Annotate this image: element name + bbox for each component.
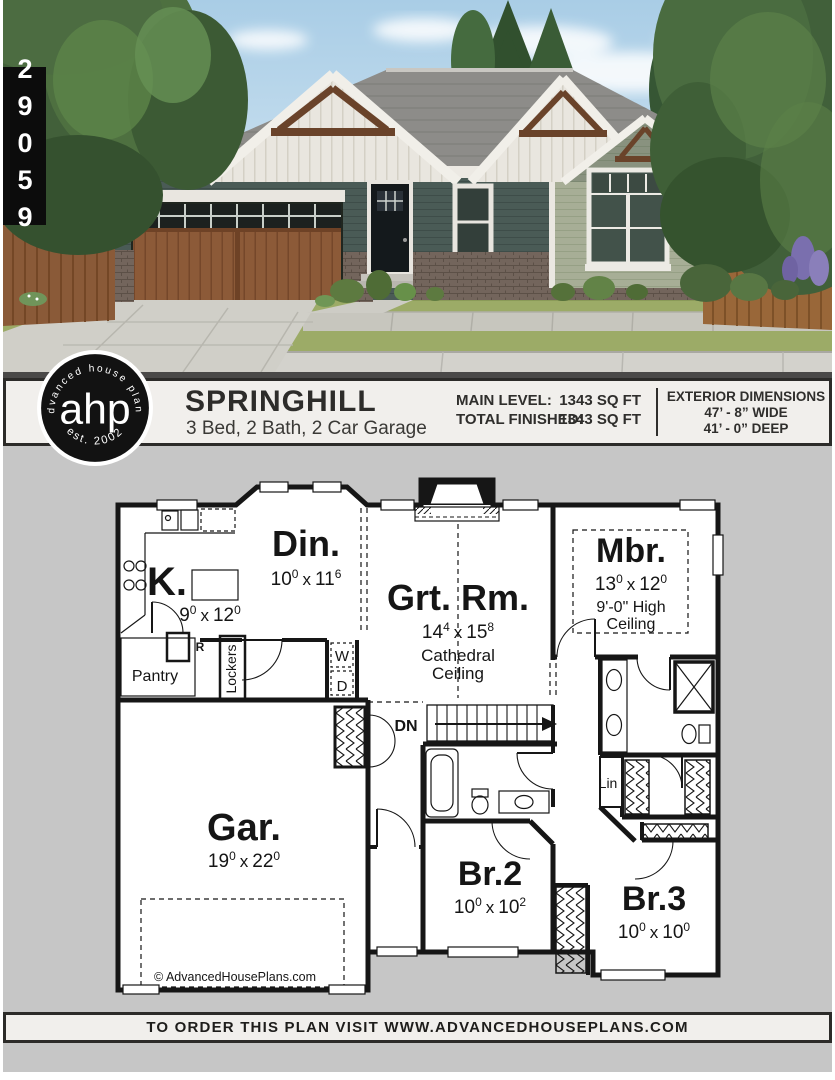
room-dim-master: 130x120 — [595, 572, 667, 595]
footer-bar: TO ORDER THIS PLAN VISIT WWW.ADVANCEDHOU… — [3, 1012, 832, 1043]
room-label-kitchen: K. — [147, 560, 187, 604]
fireplace — [415, 482, 499, 521]
house-photo — [3, 0, 832, 378]
room-label-bedroom3: Br.3 — [622, 880, 686, 918]
logo-abbr: ahp — [59, 385, 130, 433]
plan-title: SPRINGHILL — [185, 385, 377, 419]
trees-right — [650, 0, 832, 295]
exterior-depth: 41’ - 0” DEEP — [664, 421, 828, 437]
room-dim-garage: 190x220 — [208, 849, 280, 872]
label-washer: W — [335, 648, 350, 665]
room-dim-great-room: 144x158 — [422, 620, 494, 643]
room-label-dining: Din. — [272, 523, 340, 564]
exterior-width: 47’ - 8” WIDE — [664, 405, 828, 421]
label-linen: Lin — [599, 775, 618, 791]
room-dim-dining: 100x116 — [271, 567, 342, 590]
label-lockers: Lockers — [223, 644, 239, 693]
room-label-garage: Gar. — [207, 807, 281, 849]
label-pantry: Pantry — [132, 668, 178, 685]
label-fridge: R — [196, 640, 205, 654]
room-dim-bedroom2: 100x102 — [454, 895, 526, 918]
note-master-ceiling-2: Ceiling — [607, 616, 656, 633]
label-dryer: D — [337, 678, 348, 695]
room-label-master: Mbr. — [596, 532, 666, 570]
floor-plan: K. 90x120 Din. 100x116 Grt. Rm. 144x158 … — [105, 473, 730, 1013]
note-cathedral-2: Ceiling — [432, 664, 484, 683]
room-label-great-room: Grt. Rm. — [387, 577, 529, 618]
exterior-dimensions: EXTERIOR DIMENSIONS 47’ - 8” WIDE 41’ - … — [664, 389, 828, 437]
note-cathedral-1: Cathedral — [421, 646, 495, 665]
plan-number-tag: 29059 — [3, 67, 46, 225]
label-stairs-dn: DN — [394, 718, 417, 735]
note-master-ceiling-1: 9'-0" High — [596, 599, 665, 616]
order-info-text: TO ORDER THIS PLAN VISIT WWW.ADVANCEDHOU… — [146, 1019, 688, 1036]
room-label-bedroom2: Br.2 — [458, 855, 522, 893]
header-divider — [656, 388, 658, 436]
exterior-dimensions-heading: EXTERIOR DIMENSIONS — [664, 389, 828, 405]
plan-copyright: © AdvancedHousePlans.com — [154, 970, 316, 984]
ahp-logo: advanced house plans est. 2002 ahp — [35, 348, 155, 468]
plan-subtitle: 3 Bed, 2 Bath, 2 Car Garage — [186, 418, 427, 440]
stat-label-main-level: MAIN LEVEL: — [456, 392, 552, 409]
stat-value-main-level: 1343 SQ FT — [551, 392, 641, 409]
room-dim-bedroom3: 100x100 — [618, 920, 690, 943]
flyer-page: 29059 SPRINGHILL 3 Bed, 2 Bath, 2 Car Ga… — [0, 0, 835, 1080]
stat-value-total-finished: 1343 SQ FT — [551, 411, 641, 428]
